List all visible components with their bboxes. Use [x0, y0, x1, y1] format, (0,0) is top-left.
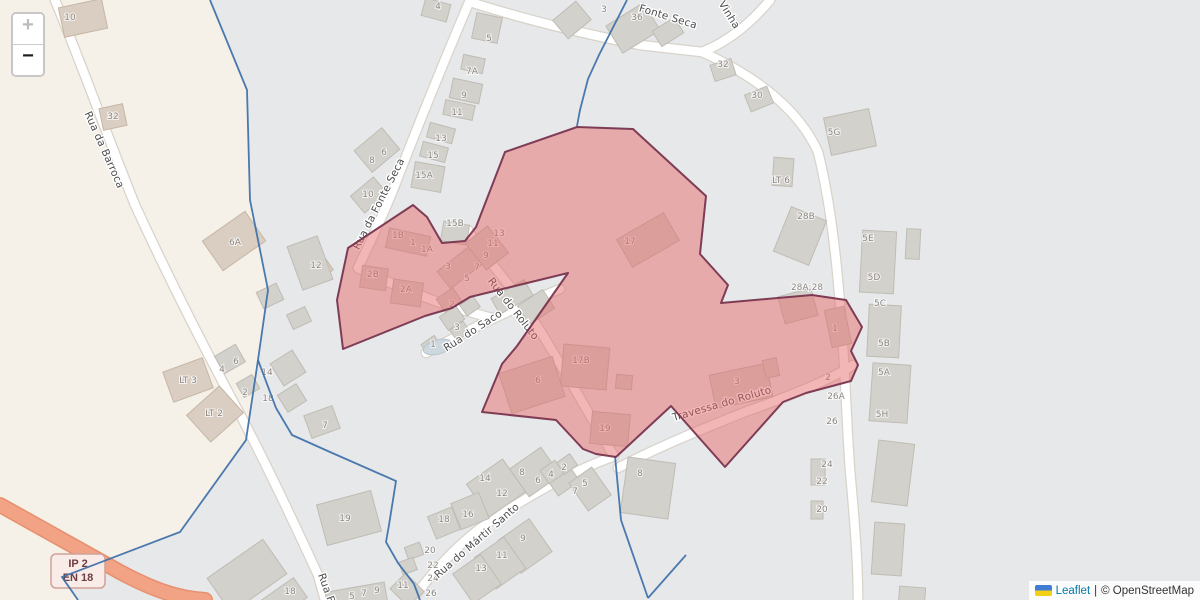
house-number: 32	[717, 60, 728, 70]
house-number: 5A	[878, 368, 891, 378]
house-number: 7A	[466, 67, 479, 77]
ukraine-flag-icon	[1035, 585, 1052, 596]
house-number: 6	[381, 148, 387, 158]
house-number: 7	[572, 487, 578, 497]
building	[898, 586, 925, 600]
house-number: LT 2	[205, 409, 223, 419]
house-number: 15	[427, 151, 438, 161]
house-number: 14	[479, 474, 491, 484]
house-number: 8	[637, 469, 643, 479]
house-number: 10	[64, 13, 76, 23]
house-number: LT 3	[179, 376, 197, 386]
zoom-in-button[interactable]: +	[13, 14, 43, 45]
house-number: 5C	[874, 299, 886, 309]
house-number: 4	[435, 2, 441, 12]
house-number: 3	[454, 323, 460, 333]
house-number: 9	[520, 534, 526, 544]
house-number: 11	[451, 108, 462, 118]
building	[905, 229, 921, 260]
osm-link[interactable]: © OpenStreetMap	[1101, 585, 1194, 597]
house-number: 18	[438, 515, 450, 525]
house-number: 4	[219, 365, 225, 375]
house-number: 6	[535, 476, 541, 486]
house-number: 28A;28	[791, 283, 823, 293]
house-number: 8	[369, 156, 375, 166]
building	[620, 457, 675, 519]
house-number: 13	[435, 134, 446, 144]
house-number: 13	[475, 564, 486, 574]
house-number: 20	[424, 546, 436, 556]
house-number: 26	[425, 589, 437, 599]
house-number: 12	[310, 261, 321, 271]
house-number: 5	[486, 34, 492, 44]
house-number: 26A	[827, 392, 845, 402]
house-number: 11	[397, 581, 408, 591]
house-number: 6	[233, 357, 239, 367]
house-number: 4	[548, 470, 554, 480]
house-number: 5E	[862, 234, 874, 244]
map-canvas[interactable]: 10326ALT 3LT 2457A911131515A861033632305…	[0, 0, 1200, 600]
house-number: 20	[816, 505, 828, 515]
house-number: 26	[826, 417, 838, 427]
house-number: 32	[107, 112, 118, 122]
attribution-bar: Leaflet | © OpenStreetMap	[1029, 581, 1200, 600]
house-number: 5H	[876, 410, 889, 420]
map-viewport[interactable]: 10326ALT 3LT 2457A911131515A861033632305…	[0, 0, 1200, 600]
house-number: 7	[361, 589, 367, 599]
house-number: 3	[601, 5, 607, 15]
house-number: 15B	[446, 219, 464, 229]
house-number: 9	[374, 586, 380, 596]
zoom-out-button[interactable]: −	[13, 45, 43, 75]
building	[871, 522, 905, 576]
house-number: 2	[242, 388, 248, 398]
house-number: 11	[496, 551, 507, 561]
house-number: 12	[496, 489, 507, 499]
house-number: 5D	[868, 273, 881, 283]
house-number: 16	[462, 510, 474, 520]
house-number: 2	[561, 463, 567, 473]
building	[867, 304, 902, 358]
attribution-separator: |	[1094, 585, 1097, 597]
house-number: 8	[519, 468, 525, 478]
house-number: 7	[322, 421, 328, 431]
house-number: 28B	[797, 212, 815, 222]
house-number: 6A	[229, 238, 242, 248]
house-number: 10	[362, 190, 374, 200]
house-number: 18	[284, 587, 296, 597]
house-number: 5B	[878, 339, 890, 349]
house-number: 15A	[415, 171, 433, 181]
house-number: 19	[339, 514, 351, 524]
building	[871, 440, 914, 506]
house-number: 1	[430, 340, 436, 350]
house-number: 30	[751, 91, 763, 101]
house-number: 5	[582, 479, 588, 489]
house-number: 5	[349, 592, 355, 600]
house-number: 5G	[828, 128, 841, 138]
leaflet-link[interactable]: Leaflet	[1056, 585, 1091, 597]
house-number: LT 6	[772, 176, 790, 186]
house-number: 22	[816, 477, 827, 487]
road-shield-line2: EN 18	[63, 572, 94, 584]
house-number: 9	[461, 91, 467, 101]
zoom-control: + −	[11, 12, 45, 77]
house-number: 24	[821, 460, 833, 470]
